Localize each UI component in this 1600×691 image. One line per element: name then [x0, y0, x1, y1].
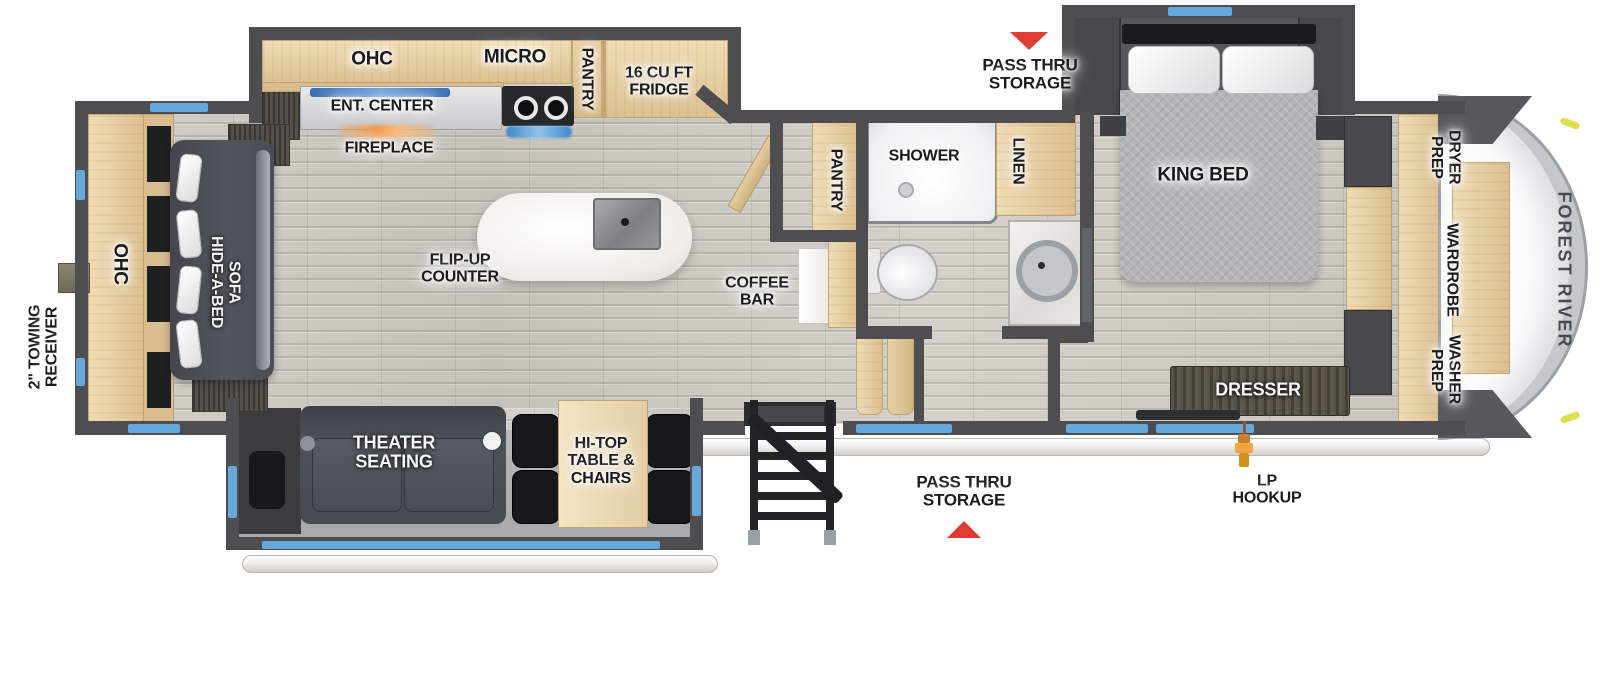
stove-burner-left-icon — [514, 96, 538, 120]
label-kitchen-pantry: PANTRY — [578, 48, 595, 111]
nightstand-right — [1316, 116, 1344, 140]
lp-hookup-connector-mid — [1235, 443, 1253, 453]
shower-drain-icon — [898, 182, 914, 198]
rear-cubby-4 — [147, 352, 171, 408]
label-wardrobe: WARDROBE — [1443, 223, 1460, 317]
label-dryer-prep: DRYER PREP — [1428, 125, 1463, 189]
label-bath-pantry: PANTRY — [827, 149, 844, 212]
stair-step — [750, 512, 834, 520]
bedroom-cabinet-top — [1344, 116, 1392, 187]
label-lp-hookup: LP HOOKUP — [1227, 473, 1307, 508]
bottom-slide-window-left — [228, 466, 237, 518]
pass-thru-arrow-up-icon — [947, 521, 981, 538]
label-ent-center: ENT. CENTER — [331, 97, 434, 114]
kitchen-slide-left-wall — [249, 27, 262, 123]
bedroom-counter — [1346, 187, 1392, 310]
dresser-shadow — [1136, 410, 1240, 420]
stove-burner-right-icon — [544, 96, 568, 120]
bottom-slide-window-right — [692, 466, 701, 516]
stair-rail-right — [826, 400, 834, 530]
label-fireplace: FIREPLACE — [345, 139, 434, 156]
label-towing-receiver: 2" TOWING RECEIVER — [27, 282, 62, 412]
fireplace-glow — [338, 125, 436, 138]
cap-handle-top — [1559, 117, 1580, 130]
label-theater-seating: THEATER SEATING — [338, 434, 450, 473]
window-bottom-2 — [1066, 424, 1148, 433]
label-fridge: 16 CU FT FRIDGE — [609, 65, 709, 100]
entry-landing-inner — [756, 406, 824, 422]
window-rear-left-2 — [76, 358, 85, 386]
window-rear-bottom — [128, 424, 180, 433]
label-flip-up-counter: FLIP-UP COUNTER — [410, 252, 510, 287]
stair-step — [750, 492, 834, 500]
label-shower: SHOWER — [889, 147, 960, 164]
label-rear-ohc: OHC — [109, 243, 130, 285]
label-hi-top-table: HI-TOP TABLE & CHAIRS — [551, 435, 651, 487]
toilet-bowl-icon — [877, 244, 938, 301]
vanity-mirror — [1082, 228, 1092, 322]
shower-pan — [866, 112, 998, 224]
bed-pillow-left — [1128, 46, 1220, 94]
bedroom-entry-wall-v — [1048, 330, 1060, 422]
floorplan-canvas: OHC MICRO PANTRY 16 CU FT FRIDGE ENT. CE… — [0, 0, 1600, 691]
hitop-chair-3 — [646, 414, 694, 468]
window-bottom-3 — [1156, 424, 1254, 433]
theater-cupholder-left — [300, 436, 315, 451]
bedroom-cabinet-bottom — [1344, 310, 1392, 395]
label-micro: MICRO — [484, 48, 546, 69]
cap-handle-bottom — [1559, 411, 1580, 424]
top-wall-front — [1342, 101, 1465, 114]
oven-glow — [506, 126, 572, 138]
lp-hookup-pipe — [1243, 421, 1246, 435]
lp-hookup-connector-icon — [1238, 434, 1250, 443]
label-washer-prep: WASHER PREP — [1428, 335, 1463, 405]
pantry-left-wall — [770, 112, 783, 242]
pantry-bottom-wall — [770, 230, 868, 242]
rear-cubby-2 — [147, 196, 171, 252]
label-pass-thru-top: PASS THRU STORAGE — [970, 57, 1090, 94]
window-bottom-1 — [856, 424, 952, 433]
headboard — [1122, 24, 1316, 44]
hall-step-wall — [914, 332, 924, 421]
stair-foot-right — [824, 530, 836, 545]
kitchen-slide-right-wall — [728, 27, 741, 117]
window-rear-left-1 — [76, 170, 85, 200]
lp-hookup-connector-tip — [1239, 453, 1249, 467]
hitop-chair-4 — [646, 470, 694, 524]
island-sink-drain — [621, 218, 629, 226]
window-rear-top — [150, 103, 208, 112]
theater-cupholder-right — [483, 432, 501, 450]
bottom-wall-mid — [698, 421, 745, 435]
linen-closet — [996, 114, 1076, 216]
label-kitchen-ohc: OHC — [351, 50, 393, 71]
nightstand-left — [1100, 116, 1126, 136]
rear-cubby-3 — [147, 266, 171, 322]
kitchen-slide-top-wall — [249, 27, 741, 40]
label-dresser: DRESSER — [1215, 380, 1301, 399]
label-king-bed: KING BED — [1157, 166, 1248, 187]
sofa-front-edge — [256, 150, 270, 370]
window-bed-slide — [1168, 7, 1232, 16]
coffee-bar-counter — [798, 248, 830, 324]
awning-tube-rear — [242, 555, 718, 573]
label-pass-thru-bottom: PASS THRU STORAGE — [904, 474, 1024, 511]
bed-pillow-right — [1222, 46, 1314, 94]
bedroom-step-1 — [856, 333, 883, 415]
slide-storage-opening — [249, 451, 285, 509]
pass-thru-arrow-down-icon — [1010, 32, 1048, 50]
label-linen: LINEN — [1009, 137, 1026, 184]
bedroom-step-2 — [887, 333, 914, 415]
bottom-slide-window-bottom — [262, 541, 660, 549]
label-brand-forest-river: FOREST RIVER — [1554, 191, 1573, 348]
label-hide-a-bed-sofa: HIDE-A-BED SOFA — [208, 223, 243, 341]
stair-foot-left — [748, 530, 760, 545]
label-coffee-bar: COFFEE BAR — [720, 275, 794, 310]
rear-cubby-1 — [147, 126, 171, 182]
vanity-sink-icon — [1016, 240, 1078, 302]
vanity-sink-drain — [1038, 262, 1045, 269]
tv-icon — [310, 88, 450, 97]
bed-slide-right-wall — [1342, 5, 1355, 115]
bath-left-wall — [856, 112, 868, 338]
